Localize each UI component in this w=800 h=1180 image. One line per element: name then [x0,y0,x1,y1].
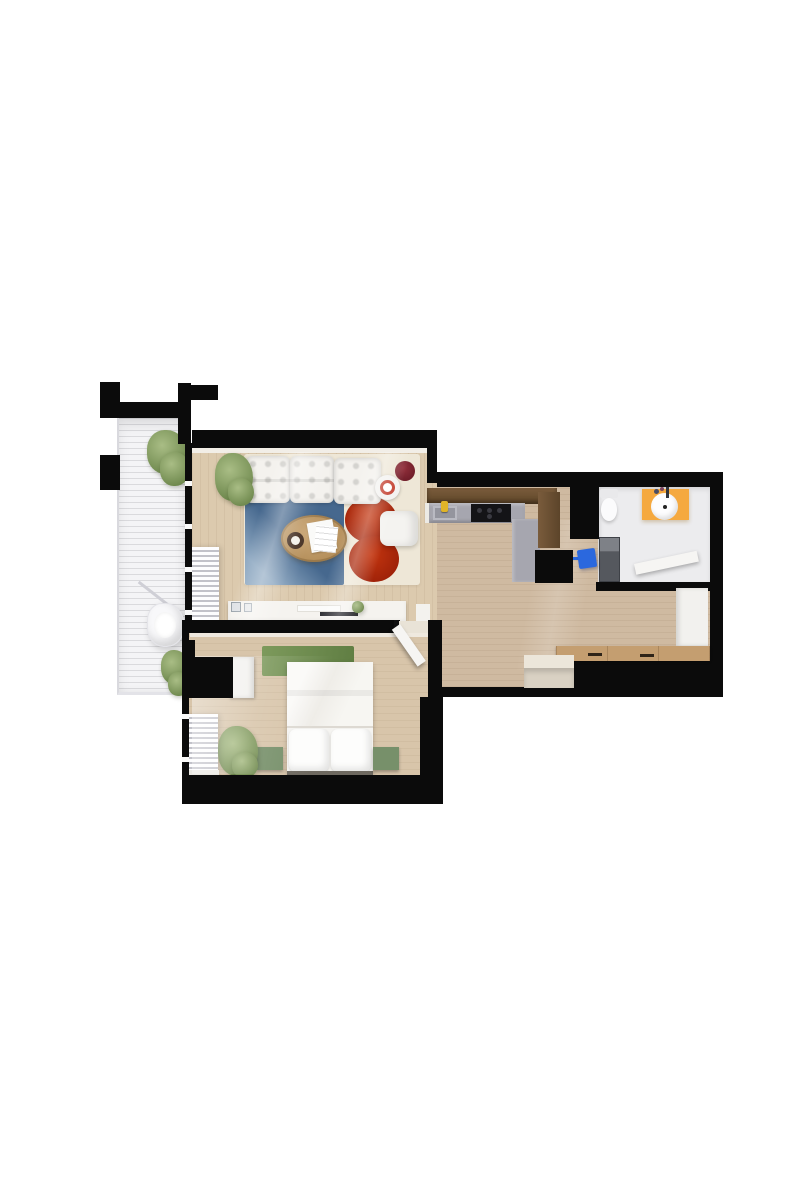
doors [0,0,800,1180]
bathroom-door [634,551,699,575]
floor-plan [0,0,800,1180]
